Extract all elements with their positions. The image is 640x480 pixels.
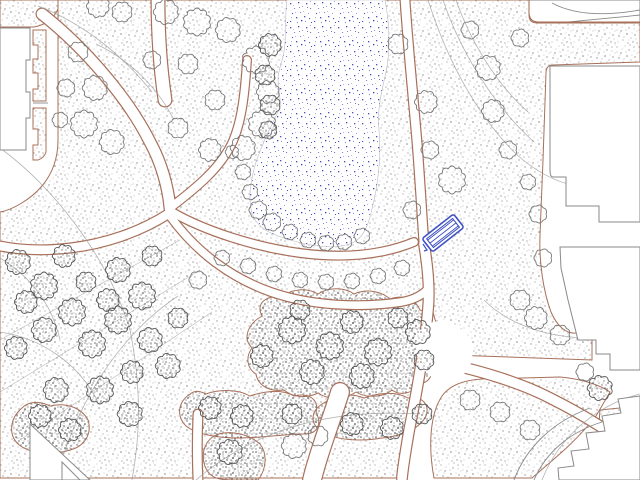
tree-symbol-dense [250,345,273,368]
tree-symbol-dense [258,34,281,57]
tree-symbol-dense [58,419,81,442]
tree-symbol-dense [349,363,374,388]
tree-symbol-dense [5,249,30,274]
tree-symbol-dense [230,405,253,428]
tree-symbol-dense [96,289,119,312]
tree-symbol-dense [405,319,430,344]
tree-symbol-dense [59,298,86,326]
tree-symbol-dense [28,405,51,428]
tree-symbol-dense [587,375,612,400]
tree-symbol-dense [120,361,143,384]
tree-symbol-dense [279,316,306,344]
tree-symbol-dense [299,359,324,384]
tree-symbol-dense [380,417,403,440]
tree-symbol-dense [4,337,27,360]
tree-symbol-dense [365,338,392,366]
building-footprint [0,28,30,150]
tree-symbol-dense [340,311,363,334]
walkway[interactable] [158,0,165,100]
tree-symbol-dense [137,327,162,352]
tree-symbol-dense [129,282,156,310]
tree-symbol-dense [14,291,37,314]
tree-symbol-dense [340,413,363,436]
tree-symbol-dense [105,257,130,282]
tree-symbol-dense [43,377,68,402]
tree-symbol-dense [87,376,114,404]
grass-polygon [33,30,46,101]
tree-symbol-dense [52,245,75,268]
tree-symbol-dense [117,401,142,426]
building-footprint [529,0,640,22]
walkway[interactable] [197,414,198,480]
tree-symbol-dense [155,353,180,378]
site-plan-map [0,0,640,480]
tree-symbol-dense [31,317,56,342]
tree-symbol-dense [79,330,106,358]
tree-symbol-dense [217,439,242,464]
tree-symbol-dense [259,121,277,139]
site-plan-canvas [0,0,640,480]
tree-symbol-dense [317,332,344,360]
tree-symbol-dense [198,397,221,420]
